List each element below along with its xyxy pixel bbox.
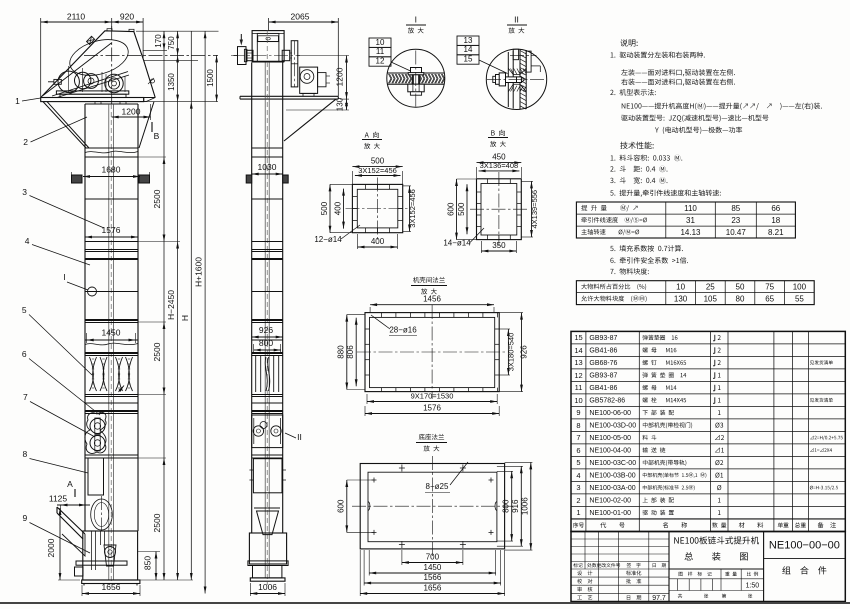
svg-text:13: 13 [574, 358, 582, 367]
svg-text:3: 3 [576, 483, 580, 492]
svg-text:GB93-87: GB93-87 [589, 373, 617, 380]
svg-text:NE100-06-00: NE100-06-00 [589, 410, 631, 417]
svg-text:NE100-03D-00: NE100-03D-00 [589, 423, 636, 430]
svg-text:880: 880 [337, 345, 346, 359]
svg-text:GB5782-86: GB5782-86 [589, 398, 625, 405]
svg-text:100: 100 [793, 282, 807, 291]
svg-text:I: I [63, 272, 65, 282]
svg-text:13: 13 [464, 36, 473, 45]
svg-text:23: 23 [731, 216, 740, 225]
svg-text:12: 12 [376, 57, 385, 66]
svg-text:14: 14 [464, 45, 473, 54]
svg-text:3X152=456: 3X152=456 [408, 189, 417, 228]
svg-text:2: 2 [576, 496, 580, 505]
svg-text:10: 10 [574, 396, 582, 405]
svg-text:850: 850 [143, 556, 153, 570]
svg-text:14−ø14: 14−ø14 [443, 239, 471, 248]
svg-text:7: 7 [576, 433, 580, 442]
svg-text:2500: 2500 [152, 513, 162, 532]
svg-text:8−ø25: 8−ø25 [426, 482, 449, 491]
svg-text:170: 170 [154, 34, 163, 48]
svg-text:450: 450 [492, 153, 506, 162]
svg-text:6: 6 [22, 349, 27, 359]
svg-text:1: 1 [15, 96, 20, 106]
svg-text:400: 400 [371, 237, 385, 246]
svg-text:II: II [514, 15, 519, 25]
svg-text:2500: 2500 [152, 342, 162, 361]
svg-text:12−ø14: 12−ø14 [314, 235, 342, 244]
svg-text:700: 700 [426, 553, 440, 562]
svg-text:2: 2 [23, 137, 28, 147]
svg-text:5: 5 [22, 305, 27, 315]
svg-text:1500: 1500 [206, 69, 215, 87]
svg-text:NE100-01-00: NE100-01-00 [589, 510, 631, 517]
svg-text:28−ø16: 28−ø16 [389, 326, 417, 335]
svg-text:9: 9 [576, 408, 580, 417]
svg-text:GB93-87: GB93-87 [589, 335, 617, 342]
svg-text:7: 7 [23, 392, 28, 402]
svg-text:926: 926 [259, 325, 273, 335]
svg-text:600: 600 [446, 202, 455, 216]
svg-text:H: H [180, 315, 190, 321]
svg-text:1006: 1006 [258, 582, 277, 592]
svg-text:14: 14 [574, 346, 582, 355]
svg-text:NE100-04-00: NE100-04-00 [589, 448, 631, 455]
svg-text:1200: 1200 [122, 107, 141, 117]
svg-text:9X170=1530: 9X170=1530 [411, 392, 454, 401]
svg-text:2110: 2110 [67, 12, 86, 22]
svg-text:4X139=556: 4X139=556 [530, 190, 539, 229]
svg-text:NE100-03B-00: NE100-03B-00 [589, 473, 635, 480]
svg-text:H−2450: H−2450 [166, 290, 176, 320]
svg-text:GB41-86: GB41-86 [589, 348, 617, 355]
svg-text:926: 926 [520, 345, 529, 359]
svg-text:400: 400 [333, 201, 342, 215]
svg-text:11: 11 [376, 47, 385, 56]
svg-text:80: 80 [736, 294, 745, 303]
svg-text:3: 3 [22, 187, 27, 197]
svg-text:9: 9 [23, 513, 28, 523]
svg-text:1450: 1450 [102, 328, 121, 338]
svg-text:3X136=408: 3X136=408 [480, 161, 519, 170]
svg-text:2000: 2000 [46, 538, 56, 557]
svg-text:15: 15 [574, 333, 582, 342]
svg-text:600: 600 [337, 499, 346, 513]
svg-text:GB41-86: GB41-86 [589, 385, 617, 392]
svg-text:1656: 1656 [424, 584, 442, 593]
svg-text:1576: 1576 [423, 404, 441, 413]
svg-text:1566: 1566 [424, 573, 442, 582]
svg-text:14.13: 14.13 [680, 228, 701, 237]
svg-text:NE100-02-00: NE100-02-00 [589, 498, 631, 505]
svg-text:1450: 1450 [424, 563, 442, 572]
svg-text:NE100-05-00: NE100-05-00 [589, 435, 631, 442]
svg-text:4: 4 [25, 236, 30, 246]
svg-text:3X180=540: 3X180=540 [506, 333, 515, 372]
svg-text:500: 500 [371, 157, 385, 166]
svg-text:2500: 2500 [152, 189, 162, 208]
svg-text:920: 920 [120, 12, 134, 22]
svg-text:11: 11 [575, 383, 583, 392]
svg-text:800: 800 [502, 499, 511, 513]
svg-text:806: 806 [346, 345, 355, 359]
svg-text:750: 750 [167, 36, 176, 50]
svg-text:65: 65 [765, 294, 774, 303]
svg-text:500: 500 [457, 202, 466, 216]
svg-text:B: B [154, 131, 160, 141]
svg-text:1125: 1125 [49, 494, 68, 504]
svg-text:1680: 1680 [102, 165, 121, 175]
svg-text:130: 130 [674, 294, 688, 303]
svg-text:25: 25 [706, 282, 715, 291]
svg-text:4: 4 [576, 471, 580, 480]
svg-text:97.7: 97.7 [652, 595, 666, 602]
svg-text:A: A [67, 479, 73, 489]
svg-text:3X152=456: 3X152=456 [358, 166, 397, 175]
svg-text:110: 110 [684, 204, 697, 213]
svg-text:1456: 1456 [423, 295, 441, 304]
svg-text:10: 10 [676, 282, 685, 291]
svg-text:1006: 1006 [521, 497, 530, 515]
svg-text:50: 50 [736, 282, 745, 291]
svg-text:18: 18 [771, 216, 780, 225]
svg-text:5: 5 [576, 458, 580, 467]
svg-text:1350: 1350 [167, 73, 176, 91]
svg-text:1: 1 [576, 508, 580, 517]
svg-text:NE100-03A-00: NE100-03A-00 [589, 485, 635, 492]
svg-text:1:50: 1:50 [746, 582, 760, 589]
svg-text:916: 916 [511, 499, 520, 513]
svg-text:12: 12 [574, 371, 582, 380]
svg-text:75: 75 [765, 282, 774, 291]
svg-text:1656: 1656 [102, 582, 121, 592]
svg-text:8: 8 [23, 449, 28, 459]
svg-text:1200: 1200 [335, 67, 345, 86]
svg-text:1030: 1030 [258, 162, 277, 172]
svg-text:31: 31 [686, 216, 695, 225]
svg-text:10: 10 [376, 38, 385, 47]
svg-text:105: 105 [704, 294, 718, 303]
svg-text:8.21: 8.21 [768, 228, 784, 237]
svg-text:NE100-03C-00: NE100-03C-00 [589, 460, 636, 467]
svg-text:10.47: 10.47 [726, 228, 747, 237]
svg-text:H+1600: H+1600 [194, 257, 204, 287]
svg-text:66: 66 [771, 204, 780, 213]
svg-text:15: 15 [464, 55, 473, 64]
svg-text:1576: 1576 [102, 225, 121, 235]
svg-text:I: I [415, 15, 417, 25]
svg-text:6: 6 [576, 446, 580, 455]
svg-text:130: 130 [336, 97, 345, 111]
svg-text:85: 85 [731, 204, 740, 213]
svg-text:800: 800 [259, 338, 273, 348]
svg-text:500: 500 [320, 201, 329, 215]
svg-text:8: 8 [576, 421, 580, 430]
svg-text:NE100−00−00: NE100−00−00 [769, 540, 840, 552]
svg-text:2065: 2065 [291, 12, 310, 22]
svg-text:GB68-76: GB68-76 [589, 360, 617, 367]
svg-text:II: II [297, 432, 302, 442]
svg-text:350: 350 [492, 241, 506, 250]
svg-text:55: 55 [795, 294, 804, 303]
